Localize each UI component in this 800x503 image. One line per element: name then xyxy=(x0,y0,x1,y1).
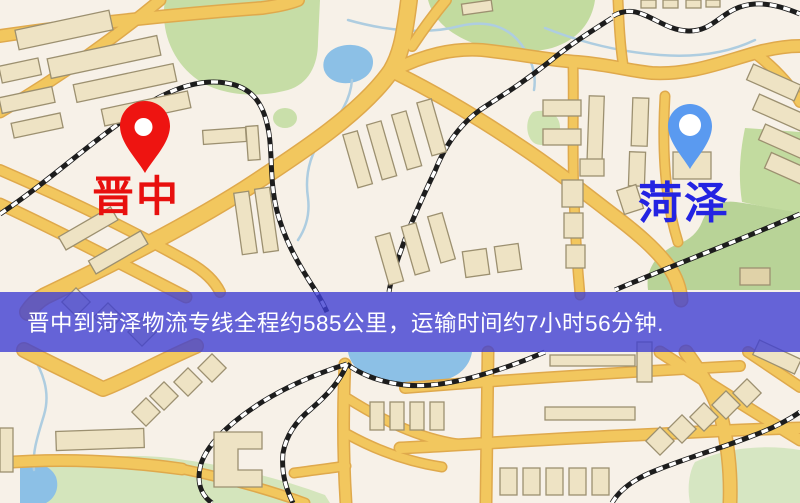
route-info-text: 晋中到菏泽物流专线全程约585公里，运输时间约7小时56分钟. xyxy=(27,306,664,338)
origin-location-pin-icon[interactable] xyxy=(120,101,170,173)
map-screenshot: 晋中 菏泽 晋中到菏泽物流专线全程约585公里，运输时间约7小时56分钟. xyxy=(0,0,800,503)
map-canvas[interactable]: 晋中 菏泽 xyxy=(0,0,800,503)
origin-city-label: 晋中 xyxy=(92,173,180,220)
destination-city-label: 菏泽 xyxy=(638,179,730,228)
route-info-banner: 晋中到菏泽物流专线全程约585公里，运输时间约7小时56分钟. xyxy=(0,292,800,352)
pond xyxy=(323,45,373,83)
